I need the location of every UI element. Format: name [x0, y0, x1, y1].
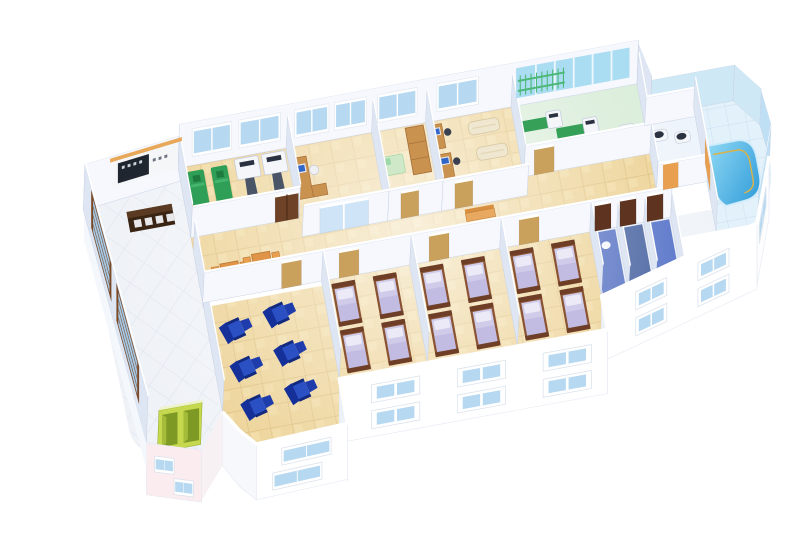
floor-plan-3d-render	[0, 0, 800, 550]
glass-door-frame	[343, 203, 345, 229]
gym-door	[534, 145, 554, 175]
elevator-opening-side	[184, 411, 188, 443]
ward-door	[429, 232, 449, 262]
ward-door	[339, 249, 359, 279]
toilet-fixture	[674, 130, 691, 144]
window-mullion	[350, 103, 351, 125]
facade-window-mullion	[566, 378, 569, 391]
wall-bars-icon	[520, 75, 521, 95]
facade-window-mullion	[480, 393, 483, 406]
window-mullion	[211, 128, 212, 150]
window-mullion	[311, 110, 312, 132]
window-mullion	[573, 58, 575, 88]
facade-window-mullion	[394, 409, 397, 422]
facade-window-mullion	[297, 471, 298, 482]
storage-door	[401, 189, 419, 218]
ward-door	[519, 216, 539, 246]
facade-window-mullion	[713, 258, 715, 271]
window-mullion	[457, 83, 458, 105]
facade-window-mullion	[566, 352, 569, 365]
facade-window-mullion	[480, 367, 483, 380]
window-mullion	[592, 54, 594, 84]
facade-window-mullion	[164, 460, 165, 470]
shower-door	[647, 193, 663, 222]
facade-window-mullion	[713, 284, 715, 297]
reception-panel	[166, 213, 175, 222]
shower-door	[595, 202, 611, 231]
consult-door	[455, 180, 473, 209]
facade-window-mullion	[306, 446, 307, 457]
wall-bars-icon	[558, 69, 559, 89]
facade-window-mullion	[184, 483, 185, 493]
wall-bars-icon	[525, 74, 526, 94]
elevator-opening-side	[162, 415, 166, 447]
wall-bars-icon	[536, 73, 537, 93]
door-split-line	[286, 194, 287, 220]
facade-window-mullion	[394, 383, 397, 396]
facade-window-mullion	[651, 287, 653, 300]
reception-panel	[134, 219, 143, 228]
window-mullion	[397, 94, 398, 116]
ward-door	[282, 259, 302, 289]
reception-panel	[144, 217, 153, 226]
reception-panel	[155, 215, 164, 224]
wall-bars-icon	[547, 71, 548, 91]
window-mullion	[259, 119, 260, 141]
shower-door	[620, 198, 636, 227]
wall-bars-icon	[563, 68, 564, 88]
wall-bars-icon	[531, 74, 532, 94]
facade-window-mullion	[651, 313, 653, 326]
floor-plan-render-stage	[0, 0, 800, 550]
window-mullion	[611, 51, 613, 81]
wall-bars-icon	[541, 72, 542, 92]
window-mullion	[554, 61, 556, 91]
wall-bars-icon	[552, 70, 553, 90]
bath-door	[663, 161, 678, 190]
